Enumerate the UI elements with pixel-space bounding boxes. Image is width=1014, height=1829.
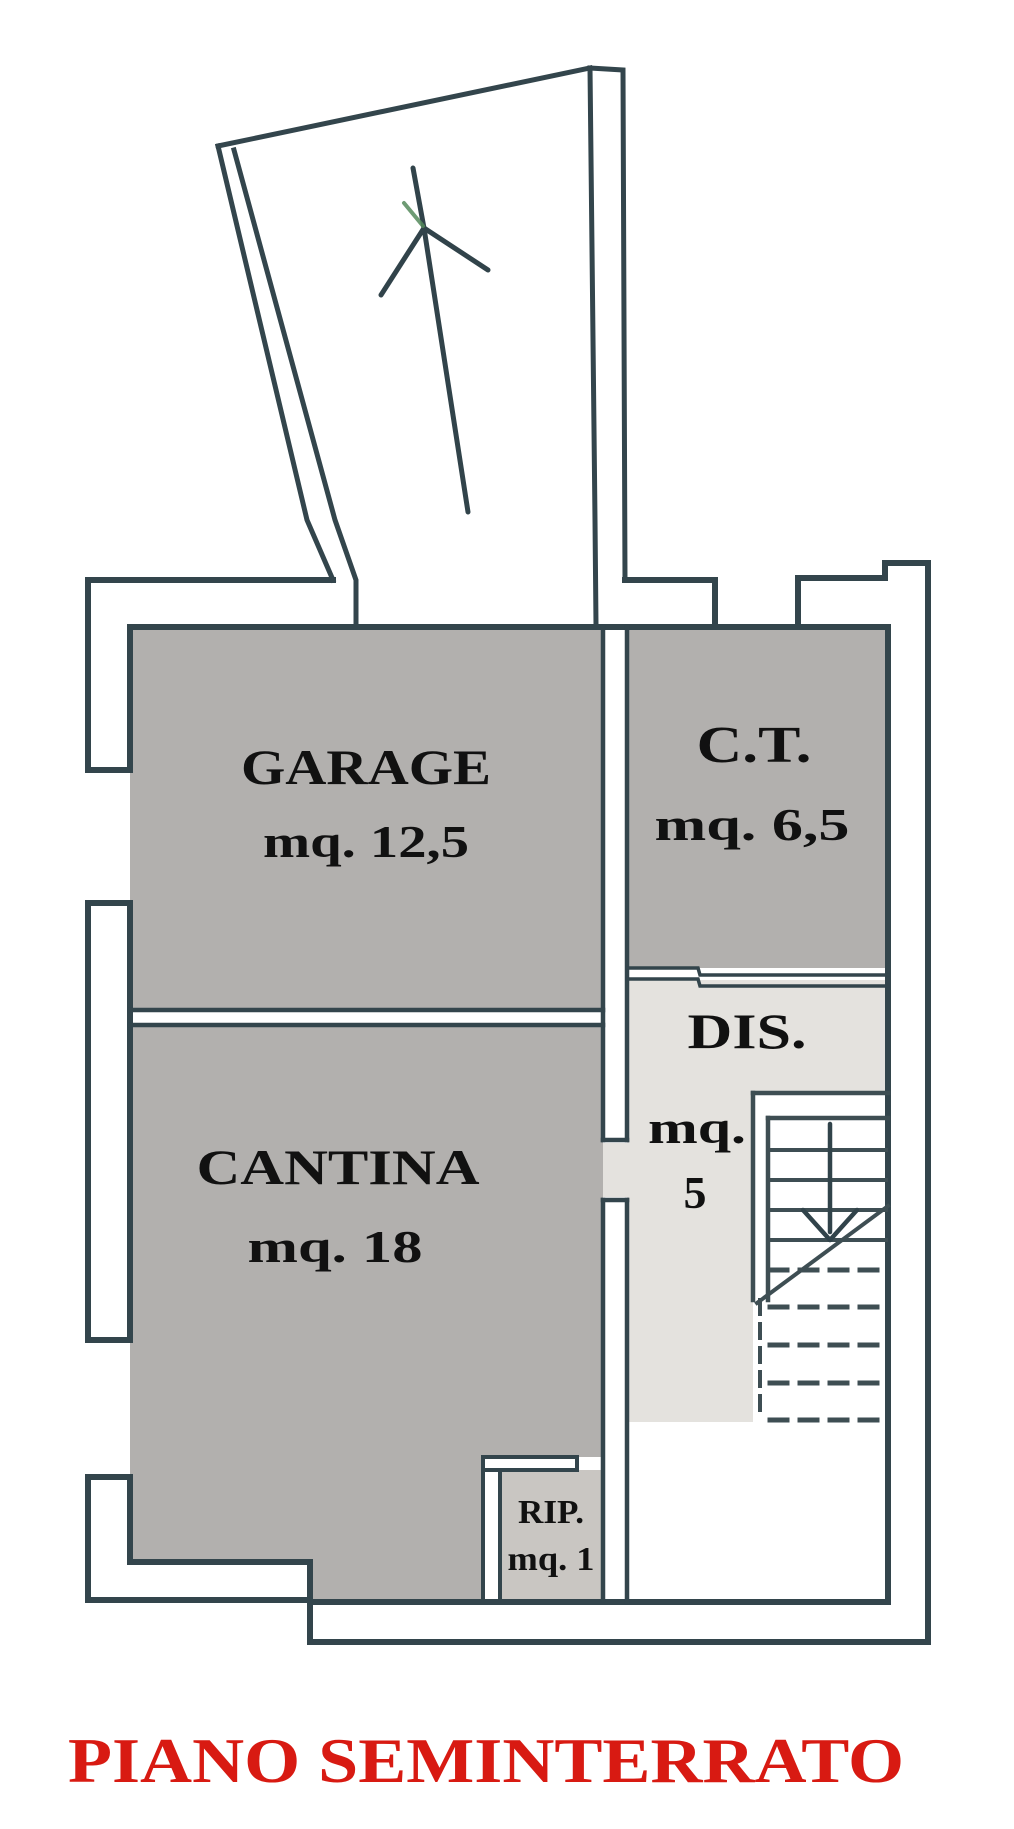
plan-title: PIANO SEMINTERRATO	[68, 1725, 904, 1796]
doorway-cantina-dis-floor	[603, 1143, 627, 1197]
dis-area-value-label: 5	[684, 1167, 707, 1218]
rip-area-label: mq. 1	[508, 1541, 595, 1578]
ct-area-label: mq. 6,5	[655, 799, 850, 850]
ct-label: C.T.	[697, 717, 812, 774]
dis-label: DIS.	[688, 1003, 807, 1059]
cantina-label: CANTINA	[197, 1139, 480, 1195]
room-rip-floor	[500, 1470, 603, 1600]
garage-area-label: mq. 12,5	[263, 816, 469, 867]
rip-label: RIP.	[518, 1494, 584, 1531]
dis-area-unit-label: mq.	[648, 1102, 746, 1153]
garage-label: GARAGE	[241, 739, 491, 795]
floor-plan-svg: GARAGE mq. 12,5 C.T. mq. 6,5 DIS. mq. 5 …	[0, 0, 1014, 1829]
cantina-area-label: mq. 18	[248, 1221, 423, 1272]
room-ct-floor	[627, 627, 888, 968]
